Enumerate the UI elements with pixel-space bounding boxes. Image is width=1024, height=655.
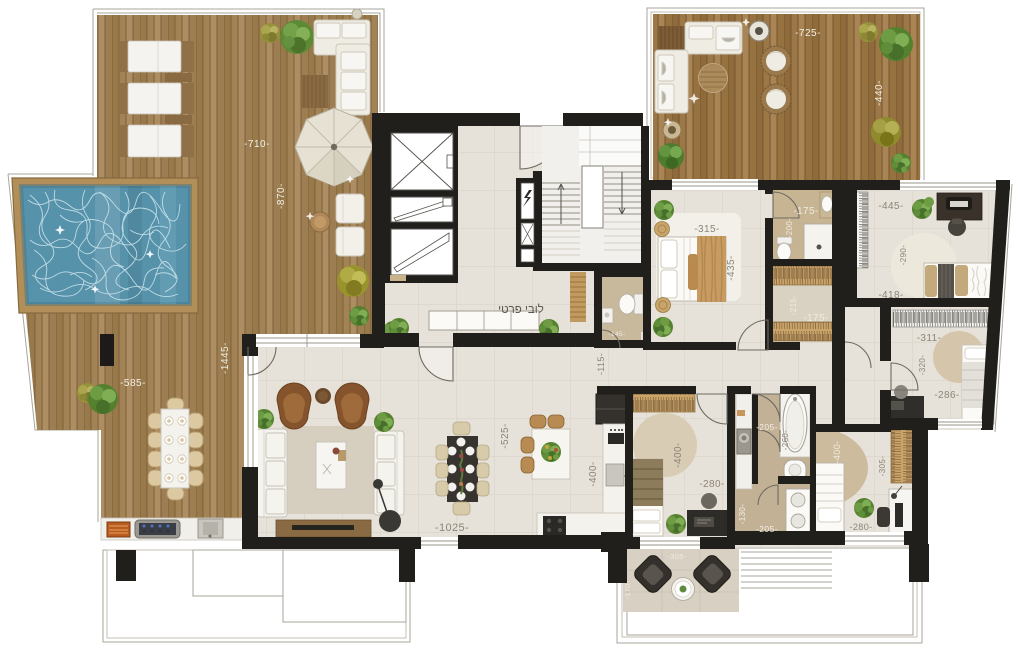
svg-text:-175-: -175- [803, 313, 828, 324]
svg-text:-870-: -870- [276, 183, 287, 209]
svg-text:-710-: -710- [244, 139, 270, 150]
svg-text:-215-: -215- [789, 295, 798, 316]
svg-text:-280-: -280- [699, 479, 724, 490]
svg-text:-435-: -435- [726, 255, 737, 280]
svg-text:-725-: -725- [795, 28, 821, 39]
svg-text:-525-: -525- [500, 423, 511, 448]
svg-text:-400-: -400- [588, 461, 599, 486]
svg-text:-130-: -130- [738, 504, 747, 525]
svg-text:-280-: -280- [849, 522, 872, 532]
svg-text:-286-: -286- [934, 390, 959, 401]
svg-text:-400-: -400- [673, 442, 684, 467]
svg-text:-200-: -200- [785, 218, 794, 239]
svg-text:-290-: -290- [899, 245, 908, 266]
svg-text:-260-: -260- [781, 430, 790, 451]
svg-text:-115-: -115- [596, 353, 606, 375]
svg-text:-305-: -305- [878, 456, 887, 477]
svg-text:-418-: -418- [878, 290, 903, 301]
svg-text:-305-: -305- [667, 552, 687, 561]
svg-text:-320-: -320- [918, 355, 927, 376]
svg-text:-170-: -170- [625, 581, 632, 600]
svg-text:-315-: -315- [694, 224, 719, 235]
svg-text:לובי פרטי: לובי פרטי [498, 303, 544, 316]
svg-text:-175-: -175- [793, 206, 818, 217]
svg-text:-205-: -205- [756, 524, 778, 534]
svg-text:-1025-: -1025- [435, 522, 469, 534]
svg-text:-585-: -585- [120, 378, 146, 389]
svg-text:-1445-: -1445- [220, 342, 231, 374]
svg-text:-440-: -440- [874, 80, 885, 106]
svg-text:-400-: -400- [832, 440, 842, 463]
svg-text:-145-: -145- [608, 331, 625, 338]
svg-text:-445-: -445- [878, 201, 903, 212]
svg-text:-311-: -311- [917, 333, 942, 344]
svg-text:-205-: -205- [756, 422, 778, 432]
